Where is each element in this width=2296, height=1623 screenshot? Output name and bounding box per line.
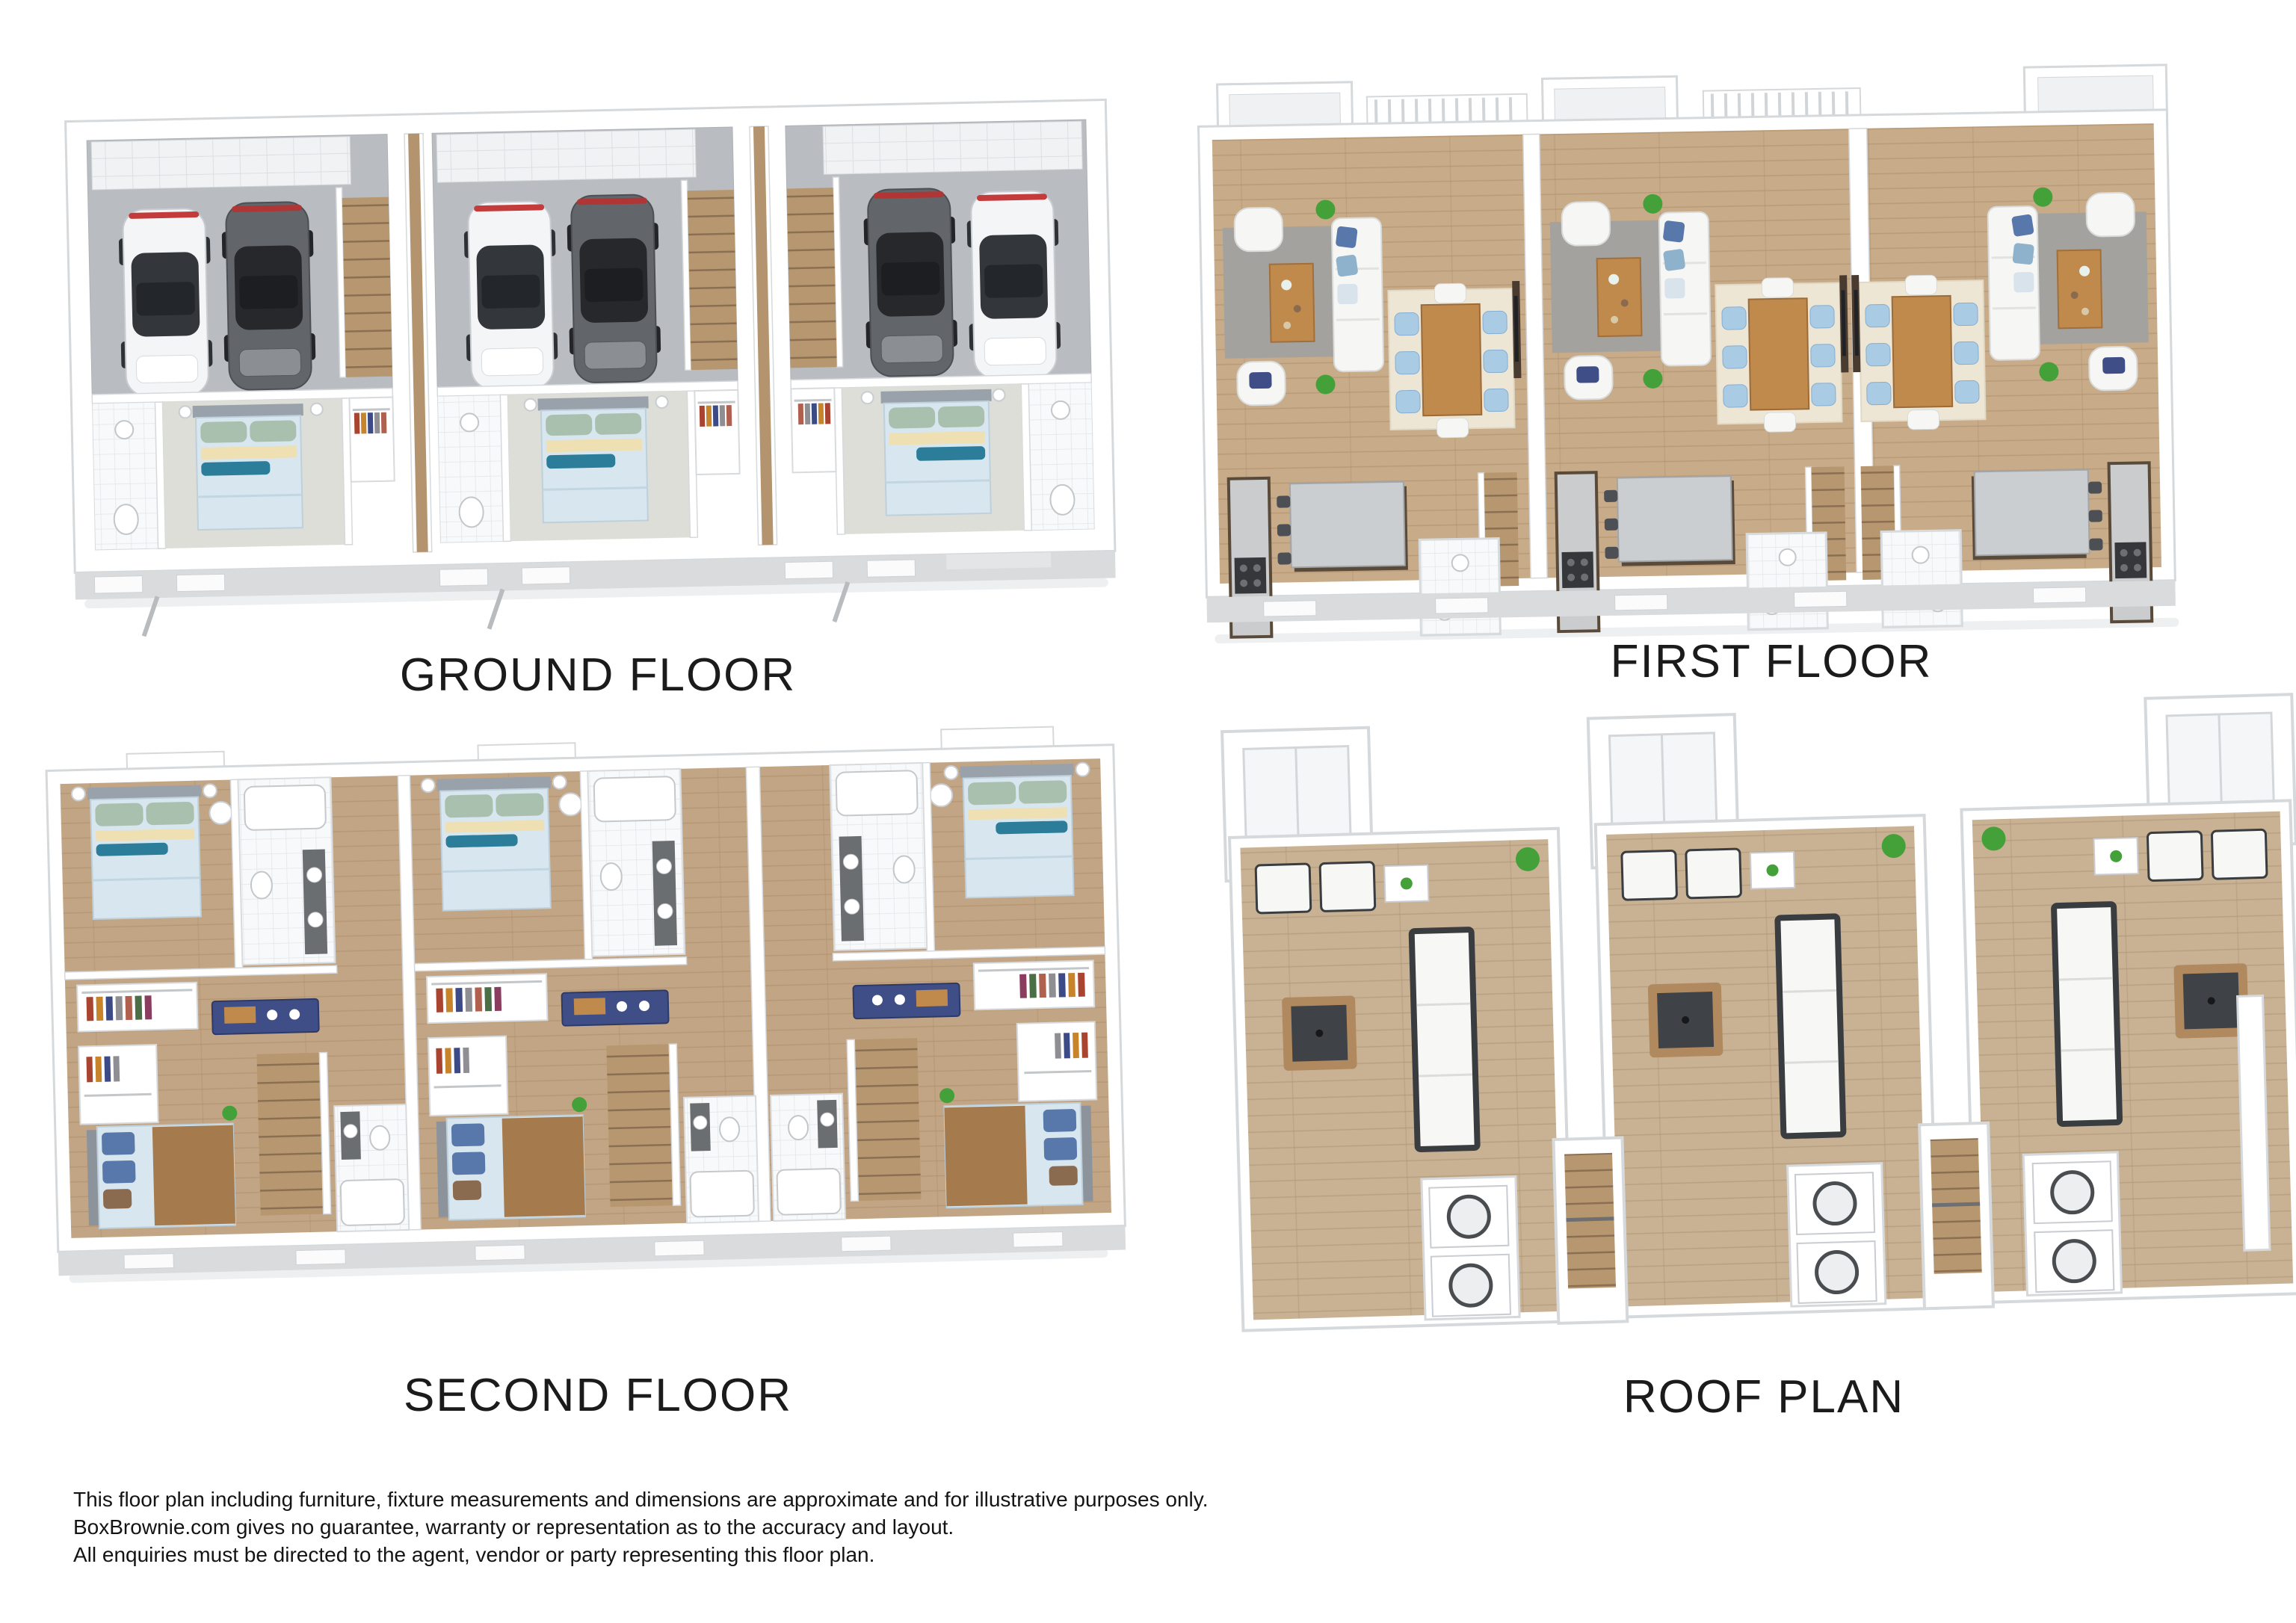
- disclaimer-line-2: BoxBrownie.com gives no guarantee, warra…: [73, 1513, 1208, 1541]
- second-floor-plan: [37, 723, 1135, 1289]
- roof-plan: [1204, 696, 2276, 1337]
- first-floor-render: [1187, 64, 2191, 651]
- roof-plan-render: [1204, 696, 2276, 1337]
- first-floor-caption: FIRST FLOOR: [1547, 635, 1996, 688]
- ground-floor-caption: GROUND FLOOR: [374, 649, 822, 702]
- ground-floor-render: [55, 72, 1126, 618]
- disclaimer-line-3: All enquiries must be directed to the ag…: [73, 1541, 1208, 1568]
- second-floor-render: [37, 723, 1135, 1289]
- floor-plan-sheet: GROUND FLOOR FIRST FLOOR SECOND FLOOR RO…: [0, 0, 2296, 1623]
- disclaimer-line-1: This floor plan including furniture, fix…: [73, 1486, 1208, 1513]
- disclaimer: This floor plan including furniture, fix…: [73, 1486, 1208, 1568]
- roof-plan-caption: ROOF PLAN: [1540, 1370, 1988, 1423]
- second-floor-caption: SECOND FLOOR: [374, 1369, 822, 1422]
- first-floor-plan: [1187, 64, 2191, 651]
- ground-floor-plan: [55, 72, 1126, 618]
